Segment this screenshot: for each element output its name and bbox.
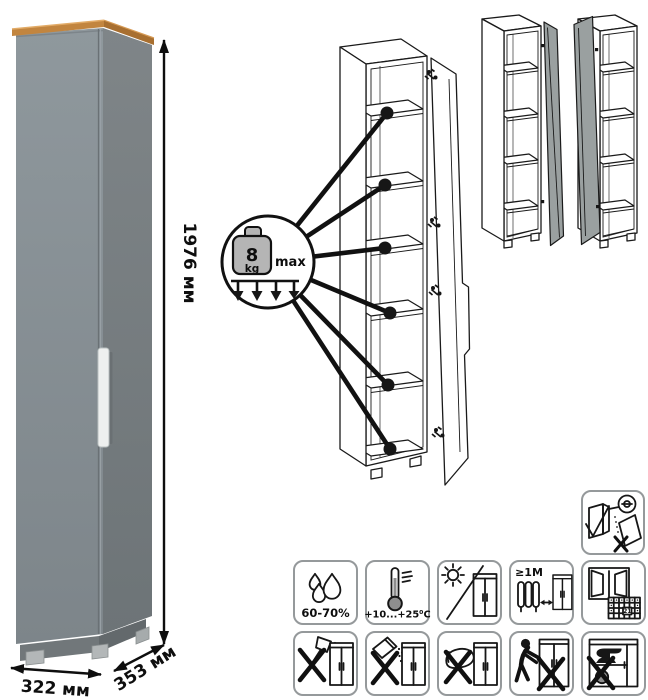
no-dragging-icon [510,632,573,695]
door-handle [98,348,109,447]
wardrobe-glyph [474,643,497,685]
shelf-dot [379,179,392,192]
anchor-to-wall-icon [582,491,644,554]
width-label: 322 мм [20,677,90,700]
max-label: max [275,255,306,270]
no-direct-sunlight-icon [438,561,501,624]
product-sheet: 1976 мм 322 мм 353 мм [0,0,648,700]
thermometer-bulb [388,597,402,611]
height-dimension: 1976 мм [164,40,199,644]
sun-icon [448,570,458,580]
ventilation-calendar-icon: 21 [582,561,645,624]
sheet-graphic: 1976 мм 322 мм 353 мм [0,0,648,700]
temperature-icon: +10...+25⁰С [364,561,430,624]
shelf-dot [381,107,394,120]
shelf-dot [384,443,397,456]
wardrobe-glyph [474,574,497,616]
no-wet-sponge-icon [438,632,501,695]
no-abrasive-powder-icon [366,632,429,695]
product-photo [12,20,154,665]
calendar-glyph: 21 [609,598,641,619]
cabinet-carcass [340,39,427,479]
radiator-glyph [518,582,539,607]
shelf-dot [379,242,392,255]
width-dimension: 322 мм [11,668,101,700]
shelf-diagram: 8 kg max [222,39,470,485]
side-panel [103,28,152,634]
depth-dimension: 353 мм [111,642,180,696]
no-sharp-tools-icon [294,632,357,695]
weight-limit-callout: 8 kg max [222,216,314,308]
care-icons-grid: 60-70% +10...+25⁰С [294,561,645,695]
door-variant-right [482,15,564,248]
depth-label: 353 мм [111,642,180,696]
distance-label: ≥1М [515,566,543,579]
temperature-label: +10...+25⁰С [364,610,430,621]
calendar-day-label: 21 [623,609,631,615]
humidity-label: 60-70% [301,606,350,620]
weight-unit-label: kg [245,263,260,275]
height-label: 1976 мм [179,222,199,303]
heat-distance-icon: ≥1М [510,561,573,624]
open-door [431,58,470,485]
no-heavy-load-icon [582,632,645,695]
shelf-dot [382,379,395,392]
wardrobe-glyph [330,643,353,685]
wardrobe-glyph [402,643,425,685]
humidity-icon: 60-70% [294,561,357,624]
front-door-panel [16,28,103,644]
wardrobe-glyph [553,575,572,609]
door-variant-left [574,15,637,248]
shelf-dot [384,307,397,320]
